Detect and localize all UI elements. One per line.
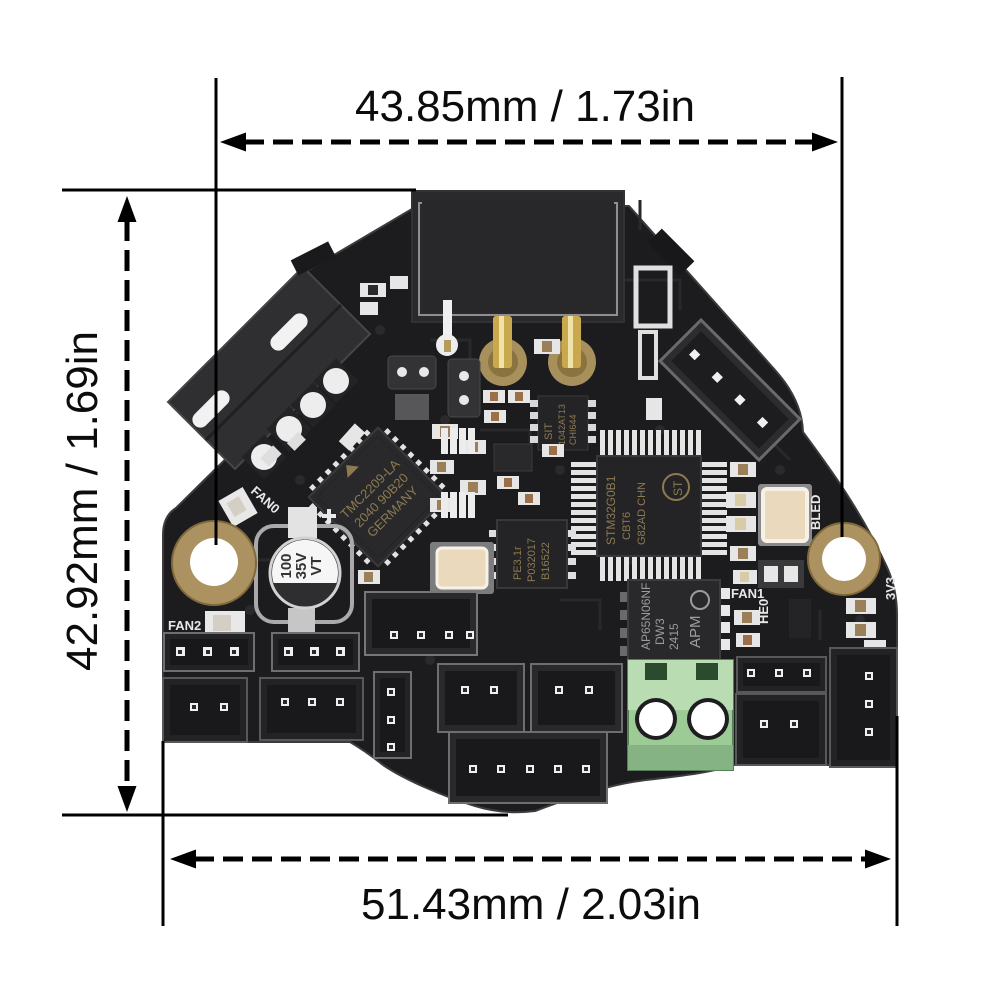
svg-text:2415: 2415 (667, 623, 681, 650)
svg-text:G82AD CHN: G82AD CHN (636, 482, 648, 545)
svg-text:3V3: 3V3 (883, 577, 898, 600)
svg-text:SIT: SIT (543, 423, 555, 440)
svg-text:FAN2: FAN2 (168, 618, 201, 633)
svg-text:STM32G0B1: STM32G0B1 (604, 475, 618, 545)
svg-text:BLED: BLED (808, 495, 823, 530)
svg-text:CHI644: CHI644 (568, 414, 578, 445)
svg-text:P032017: P032017 (526, 538, 538, 582)
svg-text:AP65N06NF: AP65N06NF (639, 583, 653, 650)
svg-text:42.92mm / 1.69in: 42.92mm / 1.69in (58, 331, 107, 671)
svg-text:ST: ST (671, 480, 685, 496)
svg-text:APM: APM (687, 615, 704, 648)
svg-text:VT: VT (308, 556, 325, 575)
svg-text:DW3: DW3 (653, 618, 667, 645)
svg-text:43.85mm / 1.73in: 43.85mm / 1.73in (355, 82, 695, 131)
svg-text:51.43mm / 2.03in: 51.43mm / 2.03in (361, 880, 701, 929)
svg-text:B16522: B16522 (540, 542, 552, 580)
svg-text:CBT6: CBT6 (621, 512, 633, 540)
svg-text:PE3.1r: PE3.1r (512, 546, 524, 580)
svg-text:1042AT13: 1042AT13 (557, 404, 567, 445)
